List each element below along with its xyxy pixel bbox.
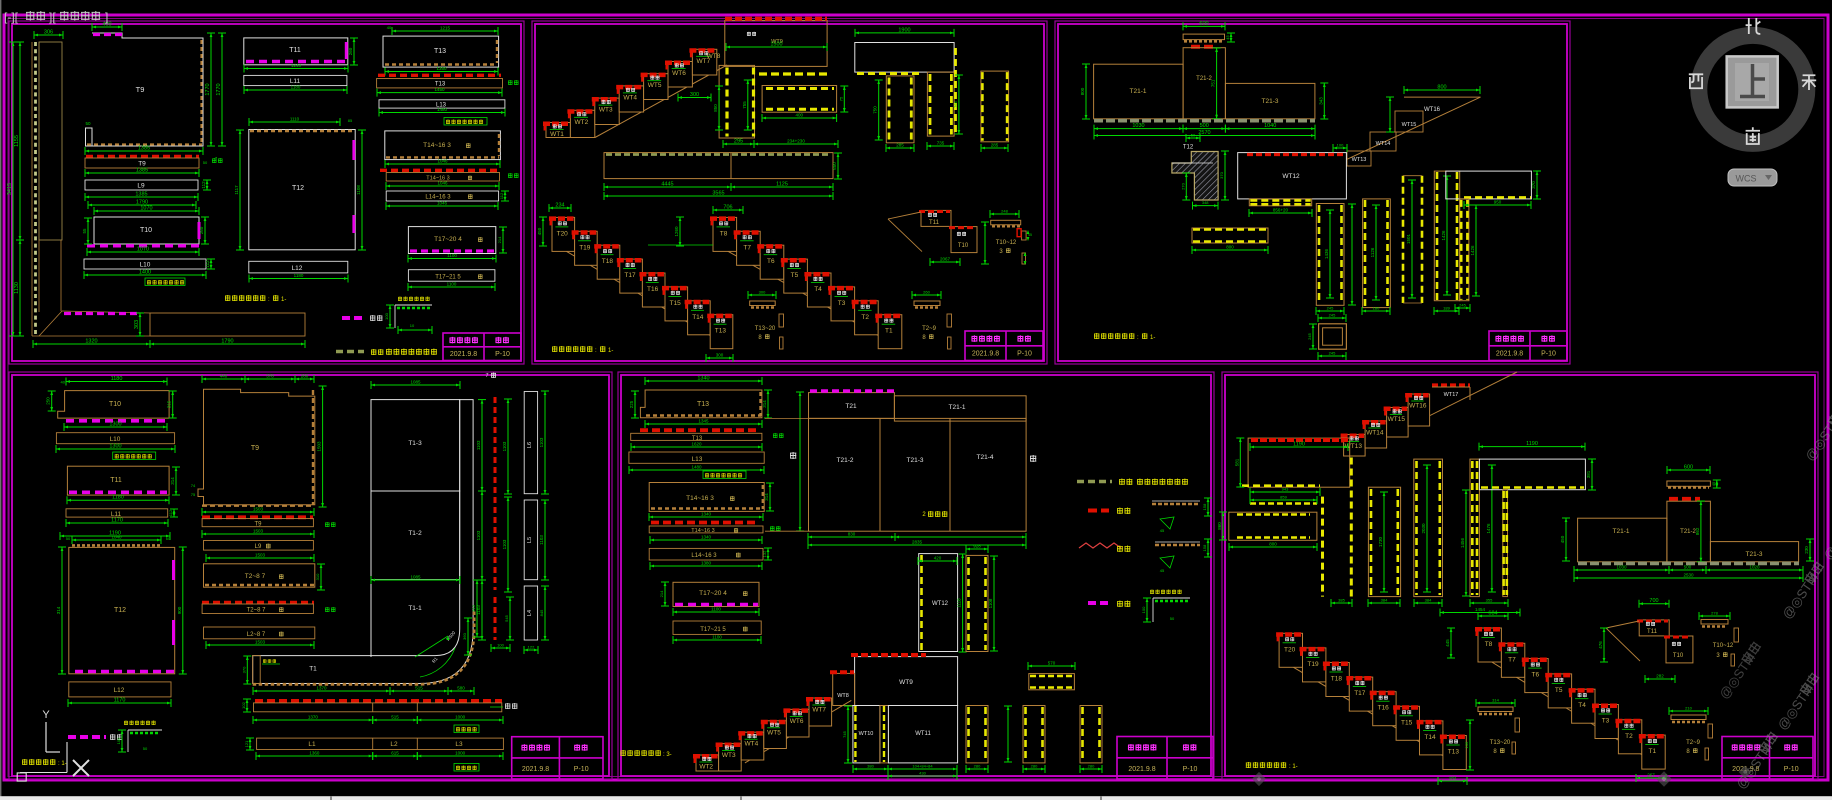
- svg-text:370: 370: [1219, 171, 1224, 178]
- svg-text:545: 545: [504, 614, 509, 621]
- svg-text:943: 943: [1282, 487, 1289, 492]
- svg-text:1620: 1620: [691, 442, 702, 447]
- svg-text:1790: 1790: [221, 339, 233, 345]
- svg-text:85: 85: [348, 118, 353, 123]
- svg-text:1070: 1070: [137, 247, 149, 253]
- svg-text:581: 581: [1234, 458, 1239, 466]
- svg-text:T1-2: T1-2: [408, 530, 422, 537]
- svg-text:50: 50: [66, 536, 71, 541]
- svg-text:L10: L10: [140, 262, 151, 269]
- svg-text:306: 306: [44, 30, 53, 36]
- svg-text:100: 100: [384, 312, 389, 319]
- svg-text:T15: T15: [1401, 719, 1413, 726]
- svg-text:1240: 1240: [291, 63, 302, 68]
- svg-text:T13: T13: [715, 328, 727, 335]
- svg-text:T10~12: T10~12: [1713, 643, 1734, 649]
- svg-text:313: 313: [471, 604, 476, 611]
- svg-text:1426: 1426: [1441, 230, 1446, 241]
- svg-text:745: 745: [842, 730, 847, 737]
- svg-text:900: 900: [177, 606, 182, 614]
- svg-text:1170: 1170: [111, 518, 123, 524]
- svg-text:T3: T3: [838, 300, 846, 307]
- svg-text:T17~21 5: T17~21 5: [435, 275, 461, 281]
- svg-text:245: 245: [1329, 313, 1336, 318]
- svg-text:580: 580: [457, 686, 465, 691]
- svg-text:1770: 1770: [205, 83, 211, 95]
- svg-text:430: 430: [919, 771, 926, 776]
- svg-text:800: 800: [1080, 87, 1085, 95]
- svg-text:225: 225: [629, 400, 634, 408]
- svg-text:T11: T11: [289, 47, 301, 54]
- svg-text:WT8: WT8: [707, 53, 721, 60]
- svg-text:T2~8 7: T2~8 7: [245, 573, 266, 580]
- svg-text:310: 310: [315, 573, 320, 580]
- svg-text:L2: L2: [390, 741, 398, 748]
- svg-text:1125: 1125: [776, 182, 788, 188]
- svg-text:1108: 1108: [356, 185, 361, 195]
- svg-text:1503: 1503: [317, 441, 322, 452]
- svg-text:1345: 1345: [698, 419, 709, 424]
- svg-text:380: 380: [867, 764, 874, 769]
- svg-text:T2: T2: [1625, 733, 1633, 740]
- svg-text:370: 370: [241, 666, 246, 673]
- svg-text:2021.9.8: 2021.9.8: [1496, 351, 1523, 358]
- svg-text:315: 315: [167, 400, 172, 408]
- svg-text:859: 859: [1280, 495, 1287, 500]
- svg-text:WT14: WT14: [1376, 141, 1391, 147]
- svg-text:1100: 1100: [447, 253, 457, 258]
- svg-text:WT15: WT15: [1402, 122, 1417, 128]
- svg-text:T18: T18: [602, 258, 614, 265]
- svg-text:: 1-: : 1-: [58, 761, 67, 767]
- svg-text:T15: T15: [670, 300, 682, 307]
- svg-text::: :: [1130, 480, 1132, 487]
- svg-text:928: 928: [973, 544, 981, 549]
- svg-text:T21-1: T21-1: [1130, 88, 1147, 95]
- svg-text:1476: 1476: [1486, 523, 1491, 534]
- svg-text:384: 384: [1425, 598, 1432, 603]
- svg-text:T10: T10: [958, 243, 969, 249]
- svg-text:735: 735: [937, 141, 945, 146]
- svg-text:L9: L9: [255, 544, 262, 550]
- svg-text:T17: T17: [624, 272, 636, 279]
- svg-text:300: 300: [690, 92, 699, 98]
- svg-text:112: 112: [499, 192, 504, 199]
- svg-text:L5: L5: [527, 537, 533, 543]
- svg-text:750: 750: [873, 106, 878, 114]
- svg-text:45: 45: [1711, 481, 1716, 486]
- svg-text:1103: 1103: [476, 440, 481, 450]
- svg-text:T7: T7: [1508, 656, 1516, 663]
- svg-text:50: 50: [203, 160, 208, 165]
- svg-text:T9: T9: [254, 522, 262, 528]
- svg-text:WT4: WT4: [745, 741, 759, 748]
- svg-text:950: 950: [1494, 200, 1502, 205]
- svg-text:L14~16 3: L14~16 3: [691, 553, 717, 559]
- svg-text:1385: 1385: [136, 168, 148, 174]
- svg-text:1480: 1480: [437, 107, 448, 112]
- svg-text:P-10: P-10: [1784, 766, 1799, 773]
- svg-text:800: 800: [1269, 542, 1277, 547]
- svg-text:1400: 1400: [139, 270, 151, 276]
- svg-text:1126: 1126: [1370, 247, 1375, 257]
- svg-text:1370: 1370: [316, 686, 327, 691]
- svg-text:55: 55: [82, 228, 87, 234]
- svg-text:T1-3: T1-3: [408, 440, 422, 447]
- svg-text:1100: 1100: [712, 635, 722, 640]
- svg-text:T12: T12: [1183, 145, 1194, 151]
- svg-text:1000: 1000: [455, 751, 466, 756]
- svg-text:T20: T20: [557, 230, 569, 237]
- svg-text:10: 10: [410, 323, 415, 328]
- svg-text:1155: 1155: [14, 135, 20, 147]
- svg-text:2021.9.8: 2021.9.8: [450, 351, 477, 358]
- svg-text:800: 800: [1437, 85, 1446, 91]
- svg-text:WT12: WT12: [932, 601, 949, 607]
- svg-text:][: ][: [49, 10, 56, 24]
- svg-text:T14~16 3: T14~16 3: [686, 495, 714, 502]
- svg-text:T1: T1: [1649, 748, 1657, 755]
- svg-text:1170: 1170: [114, 698, 126, 704]
- svg-text:T12: T12: [114, 607, 126, 614]
- svg-text:7: 7: [485, 373, 488, 379]
- svg-text:T6: T6: [767, 258, 775, 265]
- svg-text:WT7: WT7: [812, 707, 826, 714]
- svg-text:L1: L1: [308, 741, 316, 748]
- svg-text:100: 100: [497, 643, 504, 648]
- svg-text:100: 100: [1337, 143, 1344, 148]
- svg-text:L13: L13: [692, 456, 703, 463]
- svg-text:104+84+84: 104+84+84: [912, 764, 933, 769]
- svg-text:1190: 1190: [1293, 442, 1305, 448]
- svg-text:862: 862: [1695, 527, 1700, 535]
- svg-text:180: 180: [1373, 306, 1380, 311]
- svg-text:2021.9.8: 2021.9.8: [972, 351, 999, 358]
- svg-text:2021.9.8: 2021.9.8: [1128, 766, 1155, 773]
- svg-text:L12: L12: [114, 687, 125, 694]
- svg-text:1190: 1190: [1526, 441, 1538, 447]
- svg-text:1900: 1900: [898, 27, 910, 33]
- svg-text:T5: T5: [791, 272, 799, 279]
- svg-text:2530: 2530: [1683, 573, 1694, 578]
- svg-text:T16: T16: [647, 286, 659, 293]
- svg-text:1118: 1118: [957, 598, 962, 608]
- svg-text:1360: 1360: [309, 751, 320, 756]
- svg-text:T20: T20: [1284, 646, 1296, 653]
- svg-text:T10: T10: [109, 401, 121, 408]
- svg-text:214: 214: [659, 590, 664, 597]
- svg-text:210: 210: [1685, 706, 1692, 711]
- svg-text:112: 112: [168, 509, 173, 516]
- svg-text:1046: 1046: [437, 159, 448, 164]
- svg-text:158: 158: [1202, 503, 1207, 510]
- svg-text:1180: 1180: [111, 376, 123, 382]
- svg-text:700: 700: [1649, 598, 1658, 604]
- svg-text:314: 314: [170, 477, 175, 485]
- svg-text:WT5: WT5: [648, 82, 662, 89]
- svg-text:T19: T19: [1307, 661, 1319, 668]
- svg-text:T7: T7: [743, 244, 751, 251]
- svg-text:1040: 1040: [1264, 123, 1276, 129]
- svg-text:515: 515: [415, 686, 423, 691]
- svg-text:50: 50: [1191, 133, 1196, 138]
- svg-text:45: 45: [1225, 35, 1230, 40]
- svg-text:1-: 1-: [281, 297, 286, 303]
- svg-text:158: 158: [1202, 544, 1207, 551]
- svg-text:450: 450: [1560, 535, 1565, 543]
- svg-text:1436: 1436: [1324, 248, 1329, 259]
- svg-text:T3: T3: [1602, 718, 1610, 725]
- svg-text:L4: L4: [527, 610, 533, 616]
- svg-text:WT2: WT2: [575, 119, 589, 126]
- svg-text:343: 343: [1318, 97, 1323, 105]
- svg-text:1180: 1180: [294, 273, 304, 278]
- svg-text:75: 75: [838, 96, 843, 101]
- svg-text:1500: 1500: [770, 42, 782, 48]
- svg-text:112: 112: [205, 260, 210, 268]
- svg-text:1-: 1-: [1150, 335, 1155, 341]
- svg-text:: 3-: : 3-: [663, 752, 672, 758]
- svg-text:T14~16 3: T14~16 3: [423, 142, 451, 149]
- svg-text:1215: 1215: [440, 26, 451, 31]
- svg-text:T2~8 7: T2~8 7: [247, 608, 267, 614]
- svg-text:1100: 1100: [711, 607, 721, 612]
- svg-text:132: 132: [762, 550, 767, 557]
- svg-text:1130: 1130: [14, 282, 20, 294]
- svg-text:1503: 1503: [255, 640, 266, 645]
- svg-text:1103: 1103: [502, 441, 507, 451]
- svg-text:T2: T2: [861, 314, 869, 321]
- svg-text:T13~20: T13~20: [1490, 740, 1511, 746]
- svg-text:T9: T9: [136, 85, 145, 94]
- svg-text:314: 314: [764, 493, 769, 501]
- svg-text:385: 385: [1338, 598, 1345, 603]
- svg-text:280: 280: [974, 764, 981, 769]
- svg-text:1450: 1450: [434, 87, 445, 92]
- svg-text:856+20: 856+20: [1273, 208, 1289, 213]
- svg-text:45: 45: [1160, 568, 1165, 573]
- svg-text:1480: 1480: [691, 465, 702, 470]
- svg-text:T19: T19: [579, 244, 591, 251]
- svg-text:348: 348: [1202, 200, 1209, 205]
- svg-text:74: 74: [191, 483, 196, 488]
- svg-text:615: 615: [391, 751, 399, 756]
- svg-text:1030: 1030: [1132, 123, 1144, 129]
- svg-text:3415: 3415: [7, 183, 13, 195]
- svg-text::: :: [1128, 602, 1130, 609]
- svg-text:285: 285: [991, 143, 999, 148]
- svg-text:L9: L9: [137, 183, 145, 190]
- svg-text:1370: 1370: [308, 715, 319, 720]
- svg-text:T21: T21: [845, 403, 857, 410]
- svg-text:234: 234: [555, 203, 564, 209]
- svg-text:280: 280: [1031, 764, 1038, 769]
- svg-text:3565: 3565: [712, 191, 724, 197]
- svg-text:245: 245: [1329, 351, 1336, 356]
- svg-text:1503: 1503: [253, 507, 264, 512]
- svg-text:100: 100: [1141, 606, 1146, 613]
- svg-text:476: 476: [1598, 641, 1603, 649]
- svg-text:570: 570: [1048, 661, 1056, 666]
- svg-text:1103: 1103: [502, 539, 507, 549]
- svg-text:T13: T13: [1448, 749, 1460, 756]
- svg-text:L2~8 7: L2~8 7: [247, 632, 266, 638]
- svg-text:T18: T18: [1331, 676, 1343, 683]
- svg-text:WT13: WT13: [1352, 157, 1367, 163]
- svg-text:1340: 1340: [701, 535, 712, 540]
- svg-text:1340: 1340: [701, 512, 712, 517]
- svg-text:T21-1: T21-1: [949, 404, 966, 411]
- svg-text:2067: 2067: [940, 257, 951, 262]
- svg-text:1180: 1180: [291, 85, 301, 90]
- svg-text:45: 45: [1160, 528, 1165, 533]
- svg-text:1770: 1770: [216, 83, 222, 95]
- svg-text:T14: T14: [1424, 734, 1436, 741]
- svg-text:WT11: WT11: [915, 731, 931, 737]
- svg-text:40: 40: [60, 379, 65, 384]
- svg-text:T10: T10: [140, 227, 152, 234]
- svg-text:P-10: P-10: [1541, 351, 1556, 358]
- svg-text:T14: T14: [692, 314, 704, 321]
- svg-text:1103: 1103: [539, 437, 544, 447]
- svg-text:260: 260: [199, 226, 204, 234]
- svg-text:T17~21 5: T17~21 5: [700, 627, 726, 633]
- svg-text:1040: 1040: [111, 535, 122, 540]
- svg-text:T13: T13: [697, 401, 709, 408]
- svg-text:WT6: WT6: [672, 70, 686, 77]
- svg-text:751: 751: [1211, 79, 1216, 87]
- svg-text:230: 230: [1804, 546, 1809, 554]
- svg-text:102: 102: [241, 701, 246, 708]
- svg-text:T21-4: T21-4: [977, 454, 994, 461]
- svg-text:400: 400: [796, 113, 804, 118]
- svg-text:WT3: WT3: [722, 752, 736, 759]
- svg-text:445: 445: [1445, 639, 1450, 647]
- svg-text:T12: T12: [292, 185, 304, 192]
- svg-text:600: 600: [1684, 465, 1693, 471]
- svg-text:1385: 1385: [135, 192, 147, 198]
- svg-text:285: 285: [896, 143, 904, 148]
- svg-text:WT4: WT4: [623, 94, 637, 101]
- svg-text:1070: 1070: [140, 206, 152, 212]
- svg-text:4445: 4445: [661, 182, 673, 188]
- svg-text:WT6: WT6: [790, 718, 804, 725]
- svg-text:T10: T10: [1673, 653, 1684, 659]
- svg-text:295: 295: [734, 139, 743, 145]
- svg-text:280: 280: [1088, 764, 1095, 769]
- svg-text:T1: T1: [309, 666, 317, 673]
- svg-text:1020: 1020: [1749, 565, 1760, 570]
- svg-text:T9: T9: [138, 161, 146, 168]
- svg-text:1085: 1085: [410, 380, 421, 385]
- svg-text:1300: 1300: [109, 422, 121, 428]
- svg-text:1046: 1046: [437, 181, 448, 186]
- svg-text:T1-1: T1-1: [408, 605, 422, 612]
- svg-text:182: 182: [1449, 776, 1457, 781]
- svg-text:1103: 1103: [476, 530, 481, 540]
- svg-text:WT15: WT15: [1388, 416, 1406, 423]
- svg-text:684: 684: [1488, 611, 1497, 617]
- svg-text:378: 378: [266, 374, 274, 379]
- svg-text:278: 278: [1711, 611, 1718, 616]
- svg-text::: :: [1128, 509, 1130, 516]
- svg-text:420: 420: [934, 556, 942, 561]
- svg-text:WT2: WT2: [699, 764, 713, 771]
- svg-text:T13~20: T13~20: [755, 326, 776, 332]
- svg-text:50: 50: [143, 746, 148, 751]
- svg-text:2021.9.8: 2021.9.8: [522, 766, 549, 773]
- svg-text:T16: T16: [1378, 705, 1390, 712]
- svg-text:1501: 1501: [1406, 233, 1411, 244]
- svg-text::: :: [1128, 547, 1130, 554]
- svg-text:765: 765: [953, 100, 958, 107]
- svg-text:T11: T11: [1647, 629, 1658, 635]
- svg-text:1320: 1320: [85, 339, 97, 345]
- svg-text:T1: T1: [885, 328, 893, 335]
- svg-text:T21-1: T21-1: [1613, 528, 1630, 535]
- svg-text:: 1-: : 1-: [1289, 764, 1298, 770]
- svg-text:WT14: WT14: [1366, 430, 1384, 437]
- svg-text:T13: T13: [434, 48, 446, 55]
- svg-text:440: 440: [220, 374, 228, 379]
- svg-text:303: 303: [134, 320, 140, 329]
- svg-text:245: 245: [1459, 303, 1466, 308]
- svg-text:234+230: 234+230: [787, 139, 805, 144]
- svg-text:T21-2: T21-2: [837, 457, 854, 464]
- svg-text:P-10: P-10: [574, 766, 589, 773]
- svg-text:40: 40: [387, 25, 392, 30]
- svg-text:WT8: WT8: [837, 693, 849, 699]
- svg-text:250: 250: [46, 397, 51, 405]
- svg-text:T11: T11: [110, 477, 122, 484]
- svg-text:260: 260: [923, 290, 930, 295]
- svg-text:T21-3: T21-3: [1746, 551, 1763, 558]
- svg-text:1-: 1-: [608, 348, 613, 354]
- svg-text:WT5: WT5: [767, 729, 781, 736]
- svg-text:450: 450: [537, 227, 542, 235]
- svg-text:650: 650: [832, 162, 837, 170]
- svg-text:T11: T11: [929, 220, 940, 226]
- svg-text:T21-3: T21-3: [1262, 98, 1279, 105]
- svg-text:189: 189: [1443, 306, 1450, 311]
- svg-text:P-10: P-10: [1017, 351, 1032, 358]
- svg-text:755: 755: [742, 101, 747, 109]
- svg-text:500: 500: [1200, 123, 1209, 129]
- svg-text:WT9: WT9: [899, 679, 913, 686]
- svg-text:WT16: WT16: [1409, 403, 1427, 410]
- svg-text:WCS: WCS: [1736, 174, 1757, 184]
- svg-text:500: 500: [1684, 565, 1692, 570]
- svg-text:830: 830: [848, 532, 856, 537]
- svg-text:T8: T8: [720, 230, 728, 237]
- svg-text:1503: 1503: [255, 553, 266, 558]
- svg-text:75: 75: [191, 492, 196, 497]
- svg-text:L6: L6: [527, 442, 533, 448]
- svg-text:100: 100: [116, 737, 121, 744]
- svg-text:T10~12: T10~12: [996, 240, 1017, 246]
- svg-text:WT1: WT1: [550, 131, 564, 138]
- svg-text:P-10: P-10: [1183, 766, 1198, 773]
- svg-text:1085: 1085: [410, 575, 421, 580]
- svg-text:P-10: P-10: [495, 351, 510, 358]
- svg-text:122: 122: [528, 645, 535, 650]
- svg-text:1108: 1108: [988, 598, 993, 608]
- svg-text:121: 121: [244, 740, 249, 747]
- svg-text:T8: T8: [1485, 641, 1493, 648]
- svg-text:T4: T4: [814, 286, 822, 293]
- svg-text:1730: 1730: [1378, 536, 1383, 547]
- svg-text:T21-3: T21-3: [907, 457, 924, 464]
